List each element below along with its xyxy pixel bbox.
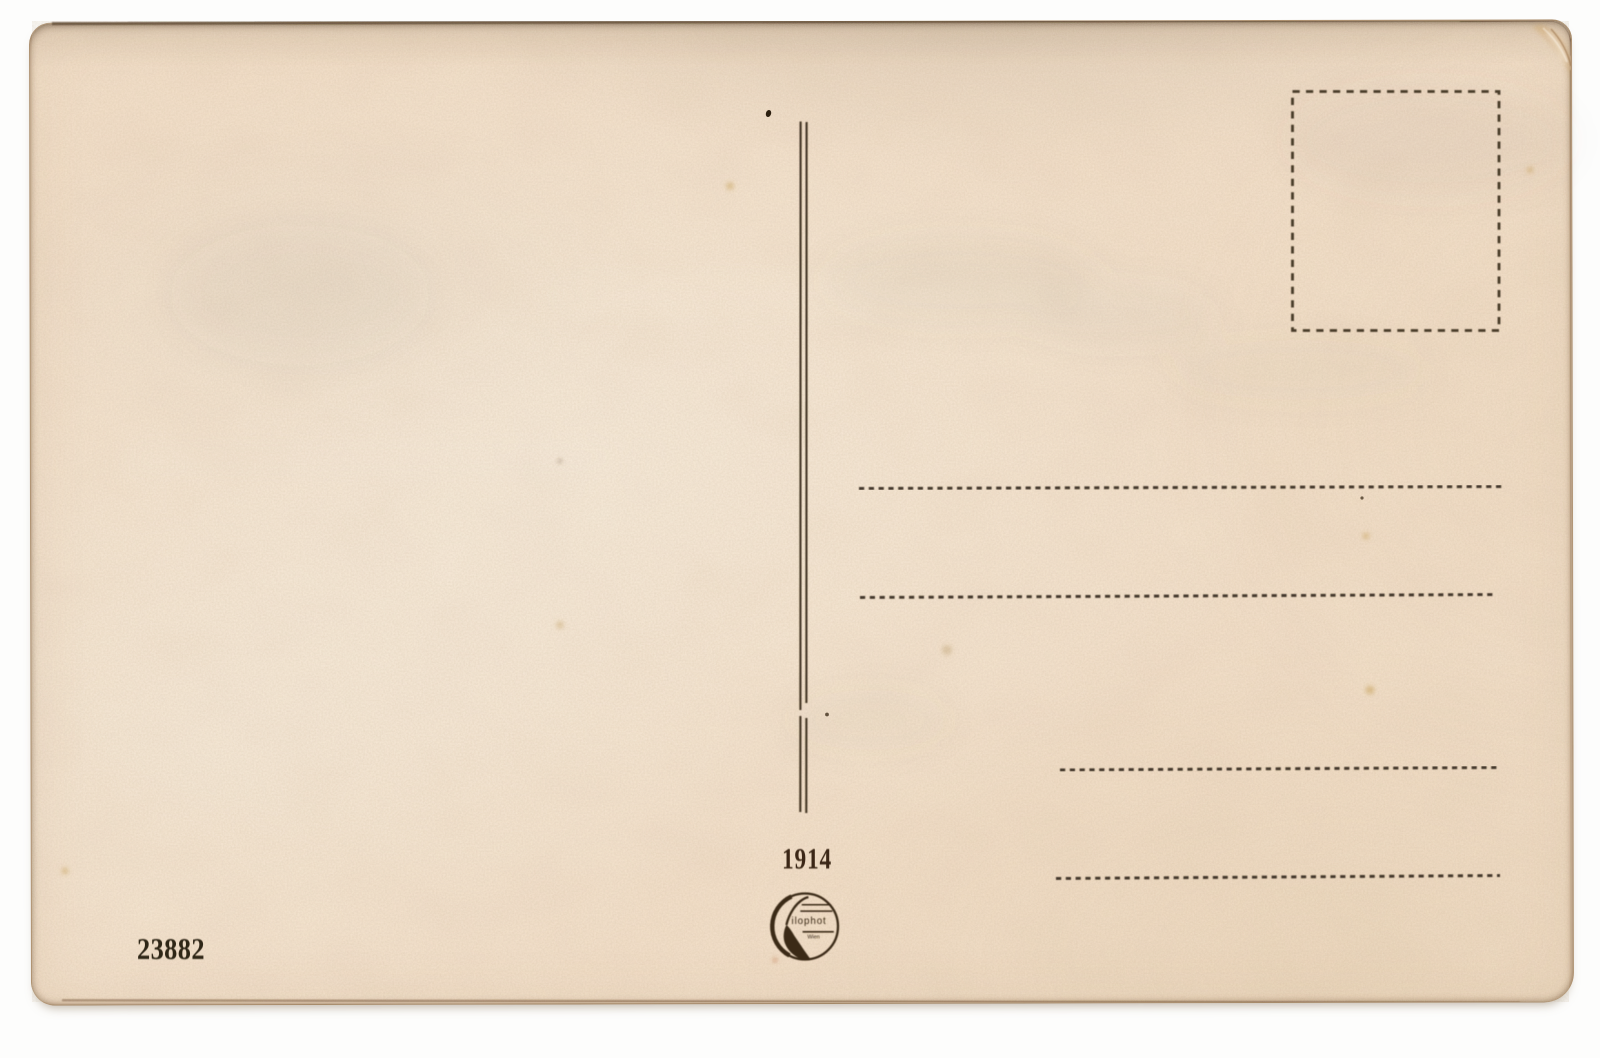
svg-text:23882: 23882 (137, 932, 205, 966)
svg-text:Wien: Wien (807, 935, 820, 941)
svg-text:1914: 1914 (782, 842, 832, 875)
svg-text:ilophot: ilophot (792, 916, 827, 927)
